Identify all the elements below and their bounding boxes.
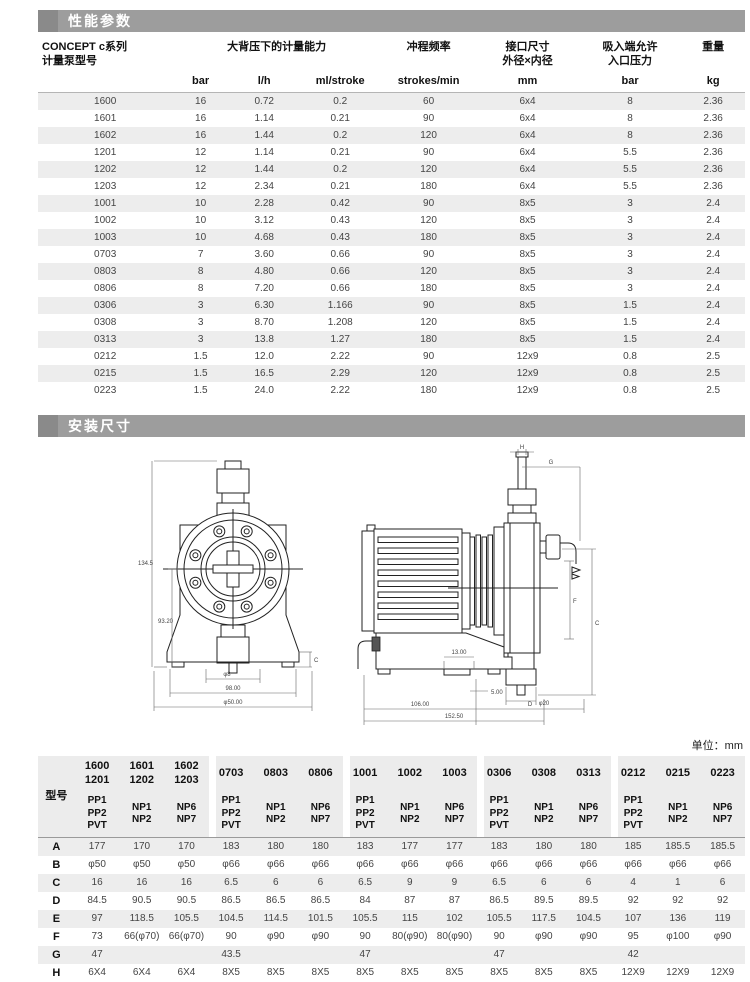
dimension-cell: 73 xyxy=(75,928,120,946)
dimension-cell xyxy=(298,946,343,964)
performance-cell: 1.14 xyxy=(229,110,300,127)
performance-cell: 12 xyxy=(172,178,229,195)
performance-cell: 6x4 xyxy=(476,110,579,127)
material-column-header: NP6 NP7 xyxy=(164,791,209,837)
dimension-cell: 86.5 xyxy=(477,892,522,910)
dimension-cell: 185 xyxy=(611,837,656,856)
dimension-cell: φ90 xyxy=(298,928,343,946)
performance-cell: 8.70 xyxy=(229,314,300,331)
model-column-header: 0308 xyxy=(521,756,566,792)
dimension-cell: φ50 xyxy=(119,856,164,874)
performance-row: 1602161.440.21206x482.36 xyxy=(38,127,745,144)
dimension-cell: 107 xyxy=(611,910,656,928)
unit-bar: bar xyxy=(172,71,229,93)
dimension-cell: 104.5 xyxy=(566,910,611,928)
performance-row: 070373.600.66908x532.4 xyxy=(38,246,745,263)
dimension-cell: 185.5 xyxy=(655,837,700,856)
dimension-cell: 97 xyxy=(75,910,120,928)
dimension-cell: φ66 xyxy=(700,856,745,874)
performance-cell: 8x5 xyxy=(476,263,579,280)
material-column-header: PP1 PP2 PVT xyxy=(209,791,254,837)
performance-cell: 1003 xyxy=(38,229,172,246)
performance-cell: 1002 xyxy=(38,212,172,229)
performance-cell: 3 xyxy=(579,212,682,229)
performance-cell: 1.5 xyxy=(172,348,229,365)
dimension-row: D84.590.590.586.586.586.584878786.589.58… xyxy=(38,892,745,910)
performance-cell: 2.36 xyxy=(681,161,745,178)
performance-section-title: 性能参数 xyxy=(68,11,132,31)
dimension-cell: φ66 xyxy=(298,856,343,874)
performance-cell: 0.2 xyxy=(300,127,381,144)
performance-cell: 120 xyxy=(381,314,476,331)
dimension-cell: 105.5 xyxy=(477,910,522,928)
side-dim-slot: 13.00 xyxy=(451,650,467,656)
side-dim-h: H xyxy=(520,445,524,451)
dimension-row: G4743.5474742 xyxy=(38,946,745,964)
performance-row: 1002103.120.431208x532.4 xyxy=(38,212,745,229)
performance-cell: 0803 xyxy=(38,263,172,280)
performance-cell: 12.0 xyxy=(229,348,300,365)
dimension-cell: 8X5 xyxy=(209,964,254,982)
dimension-cell: 92 xyxy=(700,892,745,910)
performance-cell: 2.36 xyxy=(681,110,745,127)
side-dim-motor-length: 106.00 xyxy=(411,702,430,708)
performance-cell: 0212 xyxy=(38,348,172,365)
model-column-header: 0215 xyxy=(655,756,700,792)
performance-cell: 0.66 xyxy=(300,246,381,263)
performance-row: 1202121.440.21206x45.52.36 xyxy=(38,161,745,178)
performance-cell: 2.4 xyxy=(681,263,745,280)
model-column-header: 1600 1201 xyxy=(75,756,120,792)
performance-cell: 5.5 xyxy=(579,144,682,161)
performance-cell: 13.8 xyxy=(229,331,300,348)
performance-cell: 0313 xyxy=(38,331,172,348)
dimension-cell: 104.5 xyxy=(209,910,254,928)
dimension-cell: 183 xyxy=(343,837,388,856)
performance-cell: 3 xyxy=(172,331,229,348)
performance-cell: 0.8 xyxy=(579,365,682,382)
unit-note: 单位：mm xyxy=(38,737,743,753)
performance-cell: 0.66 xyxy=(300,280,381,297)
performance-cell: 5.5 xyxy=(579,161,682,178)
model-column-header: 1001 xyxy=(343,756,388,792)
dimension-cell: 101.5 xyxy=(298,910,343,928)
side-dim-c: C xyxy=(595,621,600,627)
dimension-cell: 90 xyxy=(477,928,522,946)
model-column-header: 0806 xyxy=(298,756,343,792)
performance-cell: 6x4 xyxy=(476,144,579,161)
dimension-cell: 43.5 xyxy=(209,946,254,964)
dimension-cell: 84.5 xyxy=(75,892,120,910)
performance-row: 02231.524.02.2218012x90.82.5 xyxy=(38,382,745,399)
performance-cell: 1.5 xyxy=(579,314,682,331)
performance-cell: 0.42 xyxy=(300,195,381,212)
dimension-cell: 6X4 xyxy=(75,964,120,982)
performance-cell: 2.22 xyxy=(300,348,381,365)
model-column-header: 0803 xyxy=(253,756,298,792)
material-column-header: NP6 NP7 xyxy=(566,791,611,837)
dimension-cell: 119 xyxy=(700,910,745,928)
performance-cell: 3.60 xyxy=(229,246,300,263)
dimension-row-label: F xyxy=(38,928,75,946)
dimension-cell: 8X5 xyxy=(521,964,566,982)
unit-inlet-bar: bar xyxy=(579,71,682,93)
dimension-cell: 4 xyxy=(611,874,656,892)
performance-cell: 10 xyxy=(172,212,229,229)
dimension-cell: 90 xyxy=(343,928,388,946)
performance-cell: 12 xyxy=(172,144,229,161)
performance-cell: 6x4 xyxy=(476,92,579,110)
performance-cell: 1.5 xyxy=(579,297,682,314)
dimension-cell: 6.5 xyxy=(209,874,254,892)
connection-header: 接口尺寸 外径×内径 xyxy=(476,38,579,71)
performance-cell: 10 xyxy=(172,229,229,246)
performance-cell: 2.5 xyxy=(681,365,745,382)
dimension-row: C1616166.5666.5996.566416 xyxy=(38,874,745,892)
dimension-cell: 8X5 xyxy=(253,964,298,982)
material-column-header: PP1 PP2 PVT xyxy=(611,791,656,837)
side-dim-d: D xyxy=(528,702,533,708)
performance-cell: 8x5 xyxy=(476,246,579,263)
dimension-cell: 6 xyxy=(298,874,343,892)
performance-cell: 8 xyxy=(579,127,682,144)
dimension-cell: φ66 xyxy=(521,856,566,874)
dimension-cell: 185.5 xyxy=(700,837,745,856)
dimension-cell: 118.5 xyxy=(119,910,164,928)
dimension-cell: φ90 xyxy=(521,928,566,946)
performance-cell: 2.36 xyxy=(681,92,745,110)
performance-cell: 1001 xyxy=(38,195,172,212)
performance-cell: 3 xyxy=(579,263,682,280)
dimension-cell: 105.5 xyxy=(343,910,388,928)
performance-row: 1201121.140.21906x45.52.36 xyxy=(38,144,745,161)
performance-cell: 90 xyxy=(381,348,476,365)
dimension-cell: 8X5 xyxy=(566,964,611,982)
dimension-cell: 8X5 xyxy=(432,964,477,982)
dimension-cell: 86.5 xyxy=(298,892,343,910)
performance-cell: 2.4 xyxy=(681,212,745,229)
dimension-cell: 115 xyxy=(387,910,432,928)
performance-cell: 3 xyxy=(579,246,682,263)
unit-mlstroke: ml/stroke xyxy=(300,71,381,93)
performance-cell: 2.4 xyxy=(681,314,745,331)
bellows-ribs xyxy=(470,535,493,627)
performance-row: 1001102.280.42908x532.4 xyxy=(38,195,745,212)
performance-cell: 90 xyxy=(381,195,476,212)
performance-cell: 16 xyxy=(172,110,229,127)
unit-kg: kg xyxy=(681,71,745,93)
performance-cell: 2.4 xyxy=(681,195,745,212)
dimension-cell: 92 xyxy=(611,892,656,910)
front-dim-base-width: 98.00 xyxy=(225,686,241,692)
dimension-cell xyxy=(119,946,164,964)
performance-cell: 1602 xyxy=(38,127,172,144)
material-column-header: PP1 PP2 PVT xyxy=(75,791,120,837)
material-column-header: PP1 PP2 PVT xyxy=(477,791,522,837)
performance-cell: 16 xyxy=(172,92,229,110)
performance-cell: 1.27 xyxy=(300,331,381,348)
inlet-pressure-header: 吸入端允许 入口压力 xyxy=(579,38,682,71)
performance-cell: 8x5 xyxy=(476,331,579,348)
performance-cell: 0308 xyxy=(38,314,172,331)
material-column-header: NP6 NP7 xyxy=(298,791,343,837)
dimension-cell: 114.5 xyxy=(253,910,298,928)
dimension-cell: φ66 xyxy=(566,856,611,874)
dimension-cell: 6 xyxy=(521,874,566,892)
dimension-cell: 87 xyxy=(387,892,432,910)
dimension-cell: 16 xyxy=(75,874,120,892)
material-column-header: NP1 NP2 xyxy=(655,791,700,837)
dimension-cell: 12X9 xyxy=(655,964,700,982)
frequency-header: 冲程频率 xyxy=(381,38,476,71)
performance-cell: 2.4 xyxy=(681,280,745,297)
performance-row: 02151.516.52.2912012x90.82.5 xyxy=(38,365,745,382)
dimension-cell: 117.5 xyxy=(521,910,566,928)
model-column-header: 0223 xyxy=(700,756,745,792)
performance-cell: 0.8 xyxy=(579,348,682,365)
dimension-cell: 84 xyxy=(343,892,388,910)
performance-cell: 0223 xyxy=(38,382,172,399)
dimension-cell: 177 xyxy=(432,837,477,856)
dimension-cell: 180 xyxy=(253,837,298,856)
dimension-table: 型号 1600 12011601 12021602 12030703080308… xyxy=(38,756,745,982)
performance-cell: 0.2 xyxy=(300,92,381,110)
model-column-header: 0212 xyxy=(611,756,656,792)
dimension-cell: 1 xyxy=(655,874,700,892)
performance-cell: 2.5 xyxy=(681,382,745,399)
performance-cell: 10 xyxy=(172,195,229,212)
dimension-cell xyxy=(566,946,611,964)
dimension-cell: 8X5 xyxy=(477,964,522,982)
performance-cell: 0.2 xyxy=(300,161,381,178)
performance-cell: 0.43 xyxy=(300,212,381,229)
dimension-cell: 66(φ70) xyxy=(119,928,164,946)
performance-cell: 180 xyxy=(381,178,476,195)
performance-cell: 0.43 xyxy=(300,229,381,246)
performance-cell: 90 xyxy=(381,297,476,314)
installation-drawings: 134.5 93.20 C φ8 98.00 φ50.00 xyxy=(38,443,745,735)
dimension-cell: 180 xyxy=(521,837,566,856)
material-column-header: NP1 NP2 xyxy=(521,791,566,837)
performance-cell: 3 xyxy=(579,280,682,297)
dimension-cell: 6.5 xyxy=(477,874,522,892)
dimension-cell: 90.5 xyxy=(164,892,209,910)
front-dim-foot: C xyxy=(314,658,319,664)
dimension-cell: φ100 xyxy=(655,928,700,946)
dimension-cell: 42 xyxy=(611,946,656,964)
dimension-cell: 95 xyxy=(611,928,656,946)
dimension-cell: 8X5 xyxy=(298,964,343,982)
performance-row: 030838.701.2081208x51.52.4 xyxy=(38,314,745,331)
dimension-cell: 90 xyxy=(209,928,254,946)
dimension-cell: φ50 xyxy=(75,856,120,874)
model-column-header: 0313 xyxy=(566,756,611,792)
performance-row: 1600160.720.2606x482.36 xyxy=(38,92,745,110)
dimension-cell: φ66 xyxy=(343,856,388,874)
weight-header: 重量 xyxy=(681,38,745,71)
performance-cell: 8 xyxy=(172,280,229,297)
performance-cell: 2.4 xyxy=(681,246,745,263)
performance-cell: 16.5 xyxy=(229,365,300,382)
pump-front-view-drawing: 134.5 93.20 C φ8 98.00 φ50.00 xyxy=(118,447,338,732)
performance-cell: 2.28 xyxy=(229,195,300,212)
dimension-cell: 6 xyxy=(700,874,745,892)
performance-cell: 8x5 xyxy=(476,195,579,212)
dimension-row-label: D xyxy=(38,892,75,910)
performance-cell: 12x9 xyxy=(476,365,579,382)
side-dim-f: F xyxy=(573,599,577,605)
dimension-cell: 177 xyxy=(387,837,432,856)
dimension-cell xyxy=(521,946,566,964)
performance-cell: 1.5 xyxy=(579,331,682,348)
performance-cell: 16 xyxy=(172,127,229,144)
dimension-cell: φ66 xyxy=(209,856,254,874)
dimensions-section-header: 安装尺寸 xyxy=(38,415,745,437)
side-dim-total-length: 152.50 xyxy=(445,714,464,720)
dimension-cell: 87 xyxy=(432,892,477,910)
performance-cell: 6.30 xyxy=(229,297,300,314)
dimension-cell: 12X9 xyxy=(700,964,745,982)
dimension-cell: 183 xyxy=(477,837,522,856)
dimension-cell: 86.5 xyxy=(209,892,254,910)
performance-cell: 0306 xyxy=(38,297,172,314)
performance-cell: 8x5 xyxy=(476,280,579,297)
performance-section-header: 性能参数 xyxy=(38,10,745,32)
model-column-header: 0703 xyxy=(209,756,254,792)
model-label: 型号 xyxy=(38,756,75,838)
performance-row: 1203122.340.211806x45.52.36 xyxy=(38,178,745,195)
performance-cell: 7 xyxy=(172,246,229,263)
material-column-header: NP6 NP7 xyxy=(700,791,745,837)
dimension-cell: 102 xyxy=(432,910,477,928)
performance-cell: 90 xyxy=(381,144,476,161)
dimension-cell: 6X4 xyxy=(119,964,164,982)
performance-cell: 180 xyxy=(381,331,476,348)
model-column-header: CONCEPT c系列 计量泵型号 xyxy=(38,38,172,92)
performance-cell: 0.21 xyxy=(300,178,381,195)
dimension-cell xyxy=(387,946,432,964)
performance-table: CONCEPT c系列 计量泵型号 大背压下的计量能力 冲程频率 接口尺寸 外径… xyxy=(38,38,745,399)
performance-cell: 12x9 xyxy=(476,382,579,399)
performance-cell: 3 xyxy=(579,195,682,212)
performance-cell: 1.44 xyxy=(229,161,300,178)
performance-cell: 1601 xyxy=(38,110,172,127)
performance-cell: 24.0 xyxy=(229,382,300,399)
dimension-cell: 47 xyxy=(343,946,388,964)
pump-side-view-drawing: H G F C 13.00 5.00 φ20 106.00 D 152.50 xyxy=(348,443,608,728)
performance-cell: 120 xyxy=(381,161,476,178)
dimension-cell: 16 xyxy=(164,874,209,892)
performance-cell: 1600 xyxy=(38,92,172,110)
performance-cell: 0215 xyxy=(38,365,172,382)
performance-cell: 0.8 xyxy=(579,382,682,399)
dimensions-section-title: 安装尺寸 xyxy=(68,416,132,436)
performance-cell: 8 xyxy=(579,92,682,110)
dimension-cell: 89.5 xyxy=(521,892,566,910)
front-dim-outer-width: φ50.00 xyxy=(224,700,244,706)
performance-row: 0313313.81.271808x51.52.4 xyxy=(38,331,745,348)
performance-cell: 1.208 xyxy=(300,314,381,331)
performance-row: 1601161.140.21906x482.36 xyxy=(38,110,745,127)
dimension-cell: φ50 xyxy=(164,856,209,874)
dimension-cell: 6 xyxy=(566,874,611,892)
performance-cell: 2.4 xyxy=(681,229,745,246)
dimension-row-label: B xyxy=(38,856,75,874)
dimension-cell xyxy=(432,946,477,964)
performance-cell: 1.5 xyxy=(172,365,229,382)
performance-cell: 90 xyxy=(381,246,476,263)
dimension-cell: 86.5 xyxy=(253,892,298,910)
dimension-row-label: A xyxy=(38,837,75,856)
performance-cell: 2.29 xyxy=(300,365,381,382)
performance-cell: 8 xyxy=(579,110,682,127)
dimension-cell: φ90 xyxy=(700,928,745,946)
dimension-cell: 9 xyxy=(432,874,477,892)
performance-cell: 2.5 xyxy=(681,348,745,365)
performance-cell: 1.166 xyxy=(300,297,381,314)
dimension-cell: 170 xyxy=(164,837,209,856)
performance-row: 030636.301.166908x51.52.4 xyxy=(38,297,745,314)
performance-cell: 8x5 xyxy=(476,297,579,314)
dimension-cell: 47 xyxy=(477,946,522,964)
performance-cell: 4.68 xyxy=(229,229,300,246)
performance-cell: 8x5 xyxy=(476,229,579,246)
dimension-cell: 89.5 xyxy=(566,892,611,910)
dimension-cell: 180 xyxy=(566,837,611,856)
performance-cell: 2.22 xyxy=(300,382,381,399)
dimension-cell xyxy=(253,946,298,964)
model-column-header: 0306 xyxy=(477,756,522,792)
performance-row: 1003104.680.431808x532.4 xyxy=(38,229,745,246)
dimension-cell: 47 xyxy=(75,946,120,964)
performance-row: 080384.800.661208x532.4 xyxy=(38,263,745,280)
dimension-cell: φ66 xyxy=(387,856,432,874)
front-dim-inner-height: 93.20 xyxy=(158,619,174,625)
performance-cell: 120 xyxy=(381,365,476,382)
dimension-cell: 92 xyxy=(655,892,700,910)
performance-cell: 2.4 xyxy=(681,297,745,314)
performance-cell: 90 xyxy=(381,110,476,127)
dimension-row: E97118.5105.5104.5114.5101.5105.51151021… xyxy=(38,910,745,928)
front-dim-hole: φ8 xyxy=(223,672,231,678)
dimension-cell: 16 xyxy=(119,874,164,892)
performance-cell: 0.66 xyxy=(300,263,381,280)
side-dim-g: G xyxy=(549,460,554,466)
dimension-cell: 136 xyxy=(655,910,700,928)
side-dim-foot: 5.00 xyxy=(491,690,503,696)
performance-row: 02121.512.02.229012x90.82.5 xyxy=(38,348,745,365)
dimension-cell: 180 xyxy=(298,837,343,856)
performance-cell: 4.80 xyxy=(229,263,300,280)
performance-cell: 2.36 xyxy=(681,144,745,161)
performance-cell: 6x4 xyxy=(476,178,579,195)
dimension-row: A177170170183180180183177177183180180185… xyxy=(38,837,745,856)
performance-cell: 8x5 xyxy=(476,314,579,331)
performance-cell: 2.4 xyxy=(681,331,745,348)
performance-cell: 12 xyxy=(172,161,229,178)
dimension-cell: φ66 xyxy=(477,856,522,874)
performance-cell: 0.21 xyxy=(300,110,381,127)
dimension-cell: 183 xyxy=(209,837,254,856)
performance-cell: 1.14 xyxy=(229,144,300,161)
performance-cell: 120 xyxy=(381,263,476,280)
dimension-cell xyxy=(164,946,209,964)
front-dim-total-height: 134.5 xyxy=(138,561,154,567)
dimension-row: H6X46X46X48X58X58X58X58X58X58X58X58X512X… xyxy=(38,964,745,982)
spec-page: 性能参数 CONCEPT c系列 计量泵型号 大背压下的计量能力 冲程频率 接口… xyxy=(0,0,750,982)
unit-mm: mm xyxy=(476,71,579,93)
dimension-cell xyxy=(700,946,745,964)
